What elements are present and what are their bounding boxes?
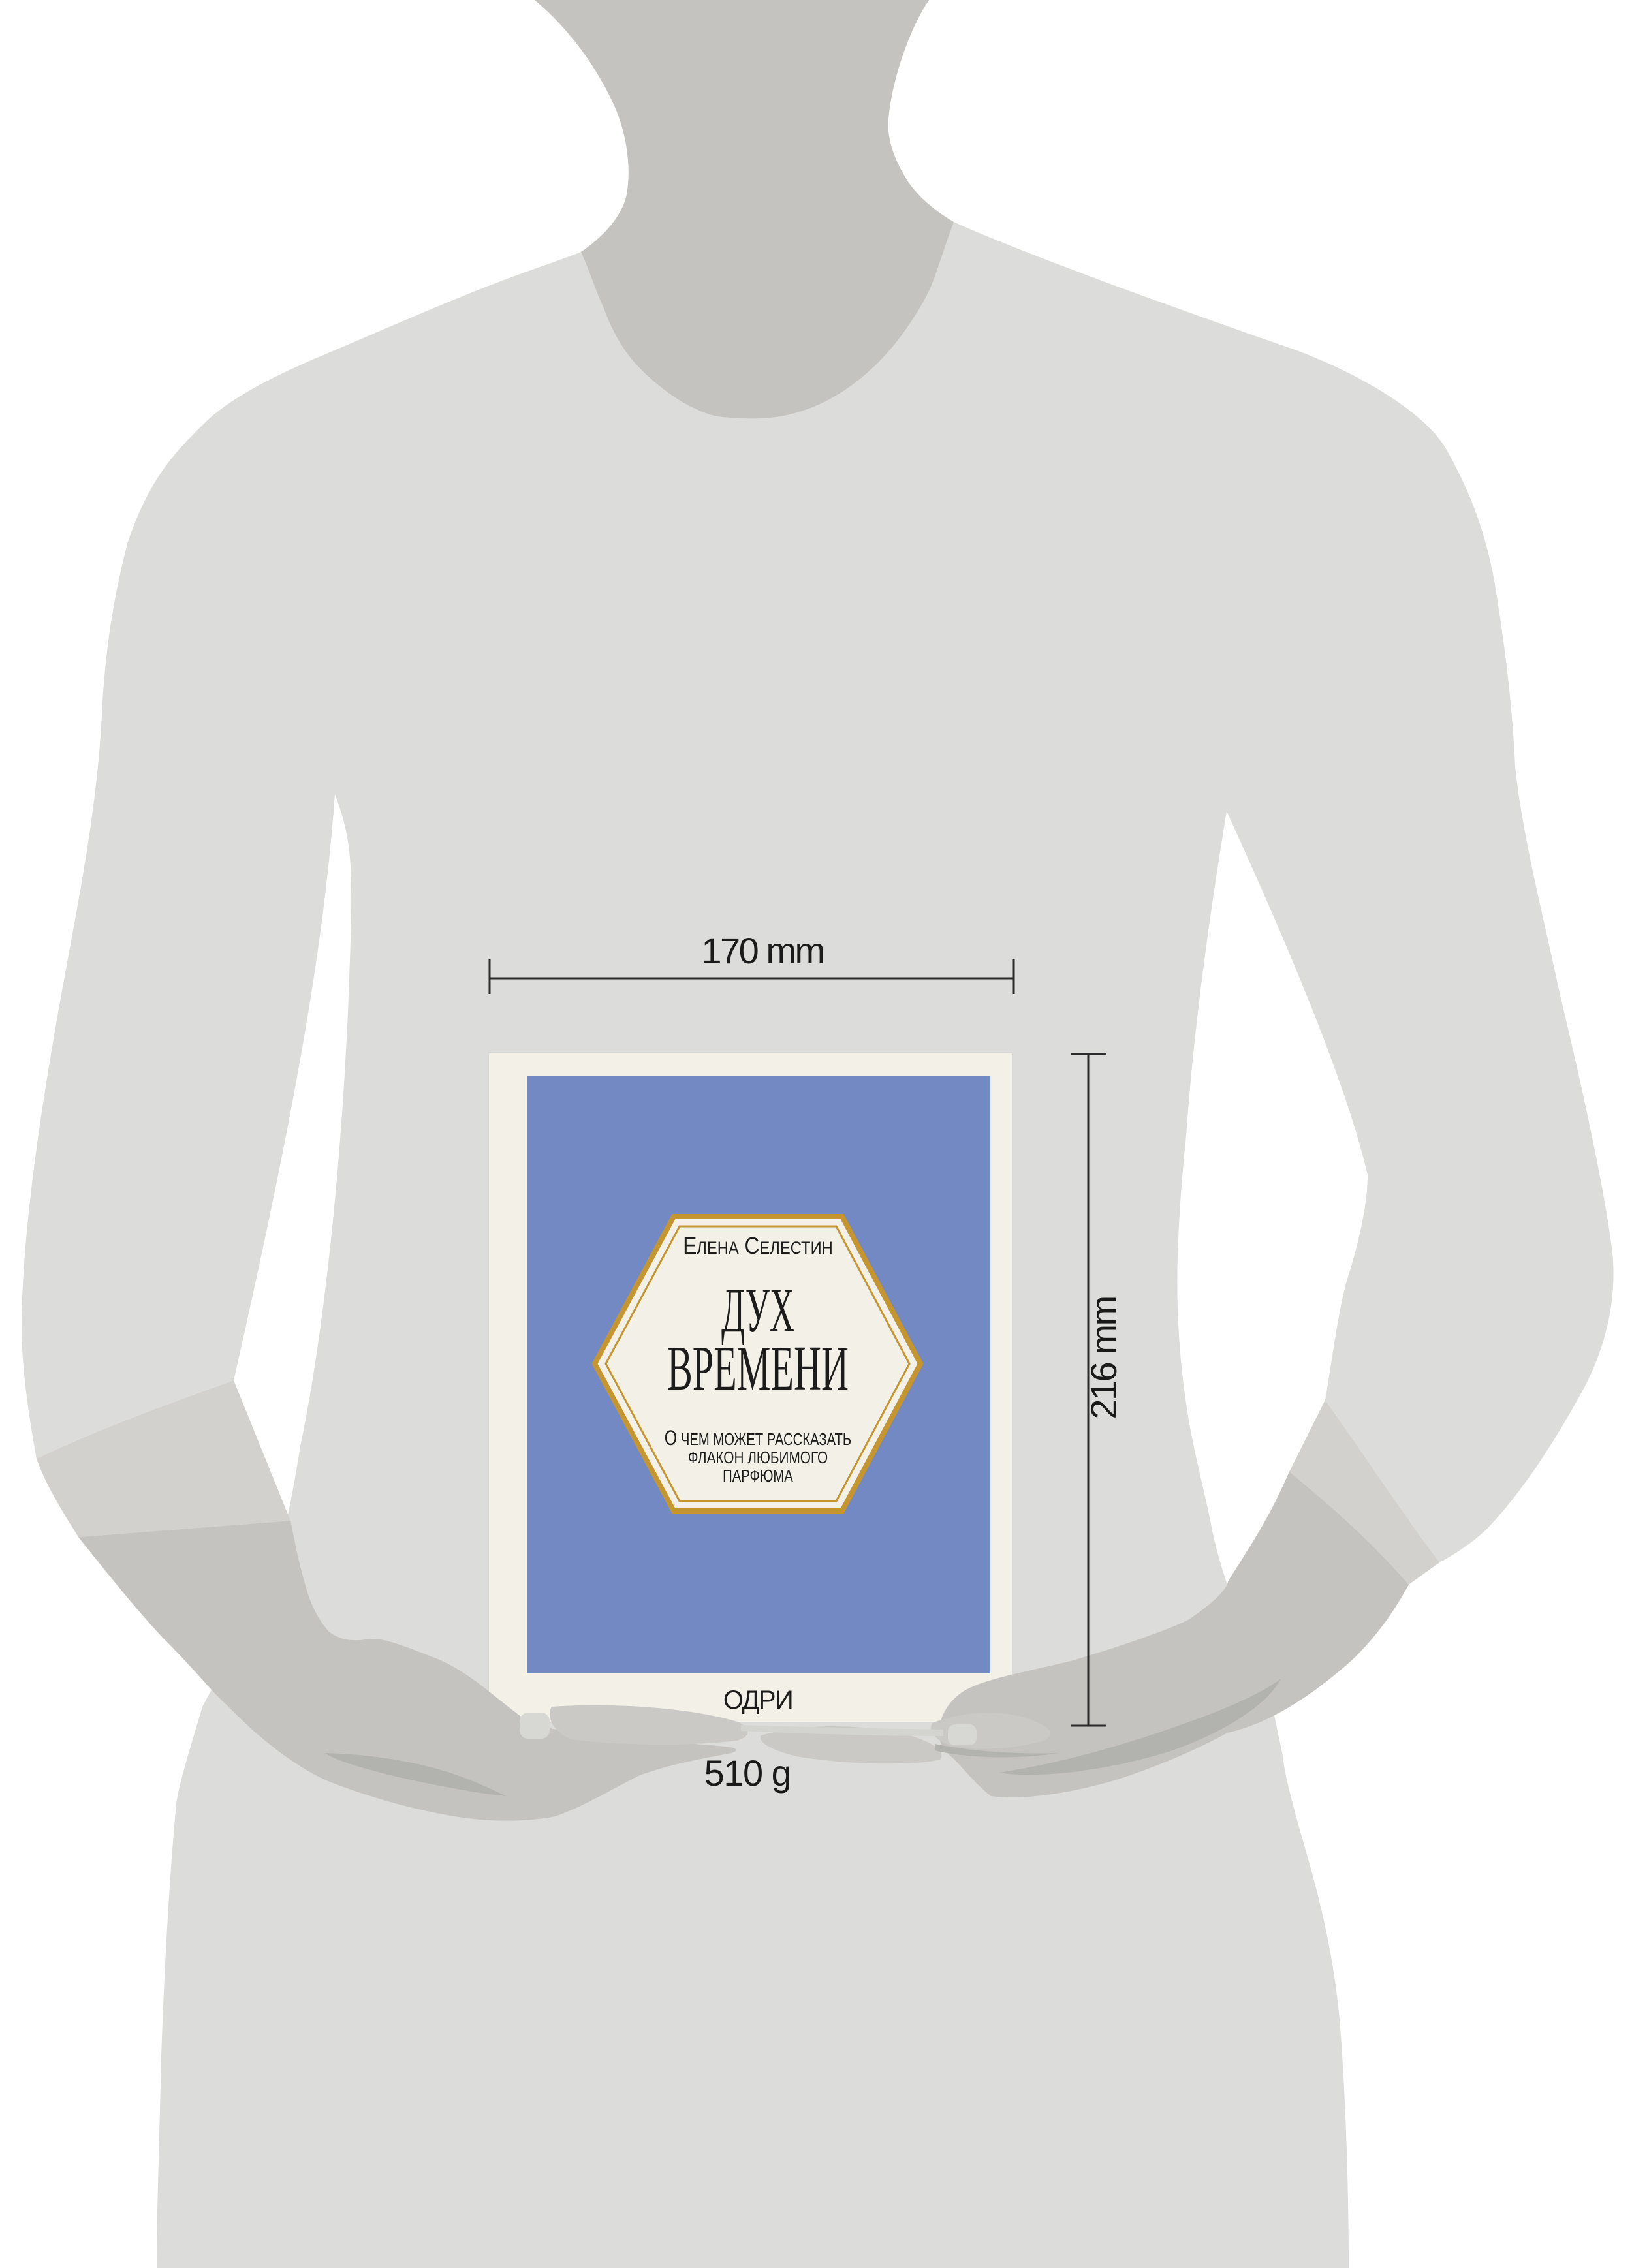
- svg-text:ОДРИ: ОДРИ: [723, 1686, 792, 1715]
- svg-text:170 mm: 170 mm: [701, 930, 823, 971]
- svg-text:510 g: 510 g: [704, 1752, 791, 1794]
- svg-text:ПАРФЮМА: ПАРФЮМА: [723, 1467, 793, 1485]
- svg-text:ФЛАКОН ЛЮБИМОГО: ФЛАКОН ЛЮБИМОГО: [688, 1448, 828, 1467]
- svg-text:216 mm: 216 mm: [1083, 1297, 1124, 1419]
- svg-text:ВРЕМЕНИ: ВРЕМЕНИ: [667, 1333, 849, 1403]
- svg-text:О ЧЕМ МОЖЕТ РАССКАЗАТЬ: О ЧЕМ МОЖЕТ РАССКАЗАТЬ: [665, 1427, 851, 1450]
